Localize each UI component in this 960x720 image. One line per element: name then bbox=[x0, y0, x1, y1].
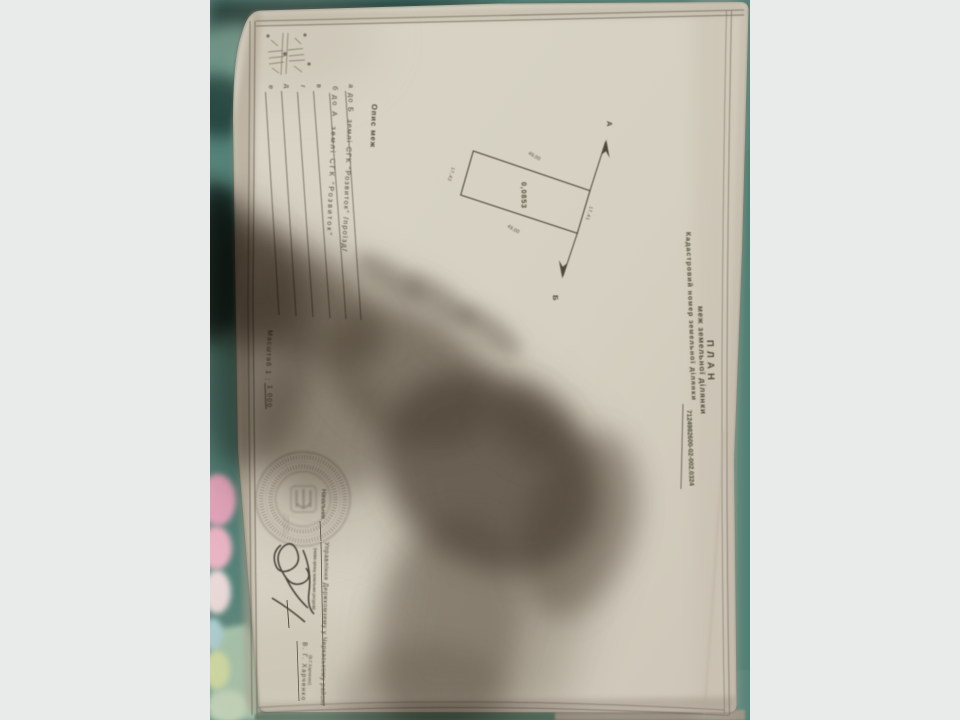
svg-text:(В.Г.Харченко): (В.Г.Харченко) bbox=[307, 655, 313, 686]
svg-text:д: д bbox=[283, 84, 290, 88]
svg-text:Опис меж: Опис меж bbox=[368, 104, 379, 148]
svg-text:е: е bbox=[267, 85, 274, 89]
svg-text:Б: Б bbox=[551, 295, 560, 301]
svg-text:б: б bbox=[331, 86, 339, 90]
svg-text:0,0853: 0,0853 bbox=[520, 182, 529, 208]
svg-text:в: в bbox=[315, 84, 322, 88]
svg-text:а: а bbox=[347, 84, 354, 88]
svg-text:А: А bbox=[605, 121, 614, 127]
